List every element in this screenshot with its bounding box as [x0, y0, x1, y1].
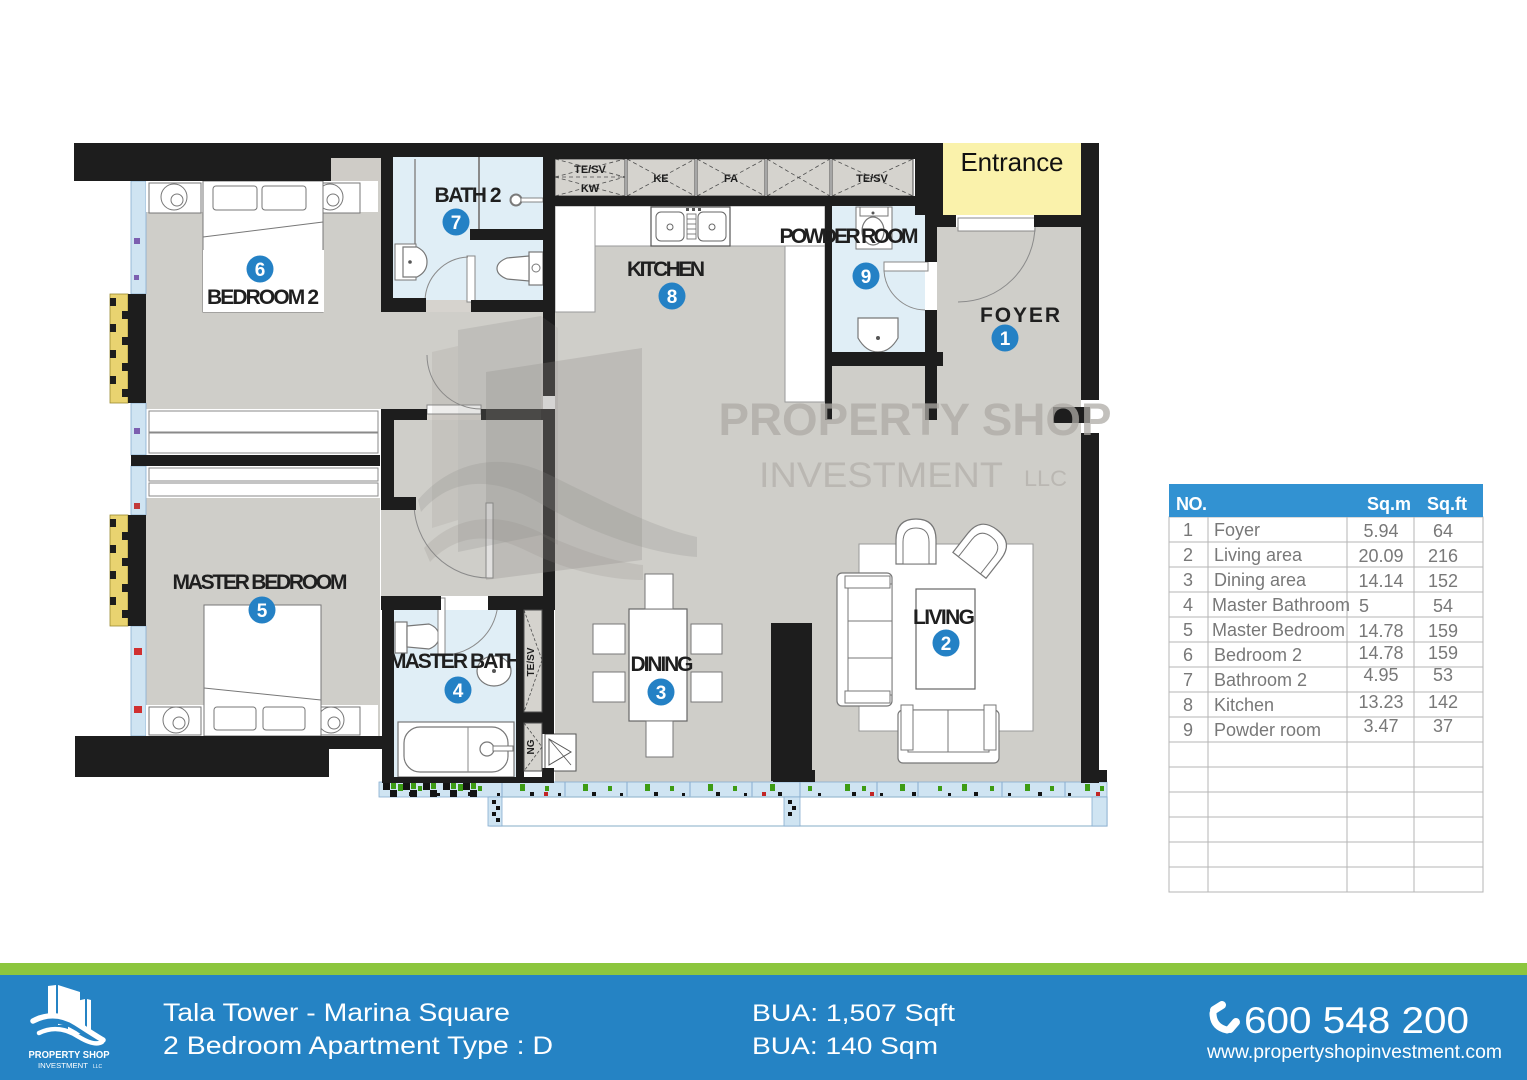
- svg-text:LLC: LLC: [1024, 466, 1067, 491]
- svg-text:BATH 2: BATH 2: [435, 184, 502, 207]
- svg-text:BEDROOM 2: BEDROOM 2: [207, 286, 319, 309]
- svg-text:Bathroom 2: Bathroom 2: [1214, 670, 1307, 690]
- svg-text:14.14: 14.14: [1358, 571, 1403, 591]
- svg-text:2: 2: [941, 634, 952, 655]
- svg-text:TE/SV: TE/SV: [574, 164, 606, 176]
- svg-text:Master Bedroom: Master Bedroom: [1212, 620, 1345, 640]
- svg-text:BUA: 1,507 Sqft: BUA: 1,507 Sqft: [752, 1000, 955, 1027]
- svg-text:159: 159: [1428, 621, 1458, 641]
- svg-text:8: 8: [1183, 695, 1193, 715]
- svg-text:7: 7: [1183, 670, 1193, 690]
- svg-text:3.47: 3.47: [1363, 716, 1398, 736]
- svg-text:1: 1: [1183, 520, 1193, 540]
- svg-text:Sq.m: Sq.m: [1367, 494, 1411, 514]
- svg-text:2 Bedroom Apartment Type : D: 2 Bedroom Apartment Type : D: [163, 1032, 553, 1060]
- svg-text:LLC: LLC: [93, 1064, 102, 1070]
- svg-text:Powder room: Powder room: [1214, 720, 1321, 740]
- svg-text:Living area: Living area: [1214, 545, 1303, 565]
- svg-text:9: 9: [1183, 720, 1193, 740]
- svg-text:5: 5: [257, 601, 268, 622]
- svg-text:LIVING: LIVING: [913, 606, 975, 629]
- svg-text:64: 64: [1433, 521, 1453, 541]
- svg-text:8: 8: [667, 287, 678, 308]
- svg-text:7: 7: [451, 213, 462, 234]
- svg-text:159: 159: [1428, 643, 1458, 663]
- svg-text:Kitchen: Kitchen: [1214, 695, 1274, 715]
- svg-text:6: 6: [255, 260, 266, 281]
- svg-text:MASTER BATH: MASTER BATH: [389, 650, 521, 673]
- svg-text:PROPERTY SHOP: PROPERTY SHOP: [719, 394, 1112, 445]
- svg-text:3: 3: [1183, 570, 1193, 590]
- svg-text:54: 54: [1433, 596, 1453, 616]
- svg-text:INVESTMENT: INVESTMENT: [759, 456, 1003, 495]
- svg-text:FA: FA: [724, 173, 738, 185]
- svg-text:BUA: 140 Sqm: BUA: 140 Sqm: [752, 1033, 938, 1060]
- svg-text:142: 142: [1428, 692, 1458, 712]
- svg-text:600 548 200: 600 548 200: [1244, 1000, 1469, 1041]
- svg-text:KE: KE: [653, 173, 668, 185]
- svg-text:3: 3: [656, 683, 667, 704]
- svg-text:KITCHEN: KITCHEN: [627, 258, 705, 281]
- svg-text:20.09: 20.09: [1358, 546, 1403, 566]
- svg-text:PROPERTY SHOP: PROPERTY SHOP: [29, 1049, 110, 1061]
- svg-text:www.propertyshopinvestment.com: www.propertyshopinvestment.com: [1206, 1042, 1502, 1063]
- svg-text:FOYER: FOYER: [980, 304, 1060, 327]
- svg-text:216: 216: [1428, 546, 1458, 566]
- svg-text:5: 5: [1359, 596, 1369, 616]
- svg-text:NO.: NO.: [1176, 494, 1207, 514]
- svg-text:DINING: DINING: [631, 653, 694, 676]
- svg-text:5: 5: [1183, 620, 1193, 640]
- svg-text:Sq.ft: Sq.ft: [1427, 494, 1467, 514]
- svg-text:6: 6: [1183, 645, 1193, 665]
- svg-text:4.95: 4.95: [1363, 665, 1398, 685]
- svg-text:9: 9: [861, 267, 872, 288]
- svg-text:14.78: 14.78: [1358, 621, 1403, 641]
- svg-text:2: 2: [1183, 545, 1193, 565]
- svg-text:Entrance: Entrance: [961, 147, 1064, 177]
- svg-text:NG: NG: [526, 739, 537, 754]
- svg-text:5.94: 5.94: [1363, 521, 1398, 541]
- svg-text:TE/SV: TE/SV: [856, 173, 888, 185]
- svg-text:4: 4: [1183, 595, 1193, 615]
- svg-text:Bedroom 2: Bedroom 2: [1214, 645, 1302, 665]
- svg-text:KW: KW: [581, 183, 600, 195]
- svg-text:152: 152: [1428, 571, 1458, 591]
- svg-text:Foyer: Foyer: [1214, 520, 1260, 540]
- svg-text:INVESTMENT: INVESTMENT: [38, 1063, 89, 1070]
- svg-text:Tala Tower - Marina Square: Tala Tower - Marina Square: [163, 999, 510, 1027]
- svg-text:Dining area: Dining area: [1214, 570, 1307, 590]
- svg-text:POWDER ROOM: POWDER ROOM: [780, 225, 919, 248]
- svg-text:1: 1: [1000, 329, 1011, 350]
- svg-text:37: 37: [1433, 716, 1453, 736]
- svg-text:TE/SV: TE/SV: [526, 647, 537, 676]
- svg-text:53: 53: [1433, 665, 1453, 685]
- svg-text:Master Bathroom: Master Bathroom: [1212, 595, 1350, 615]
- svg-text:14.78: 14.78: [1358, 643, 1403, 663]
- svg-text:13.23: 13.23: [1358, 692, 1403, 712]
- svg-text:4: 4: [453, 681, 464, 702]
- svg-text:MASTER BEDROOM: MASTER BEDROOM: [173, 571, 348, 594]
